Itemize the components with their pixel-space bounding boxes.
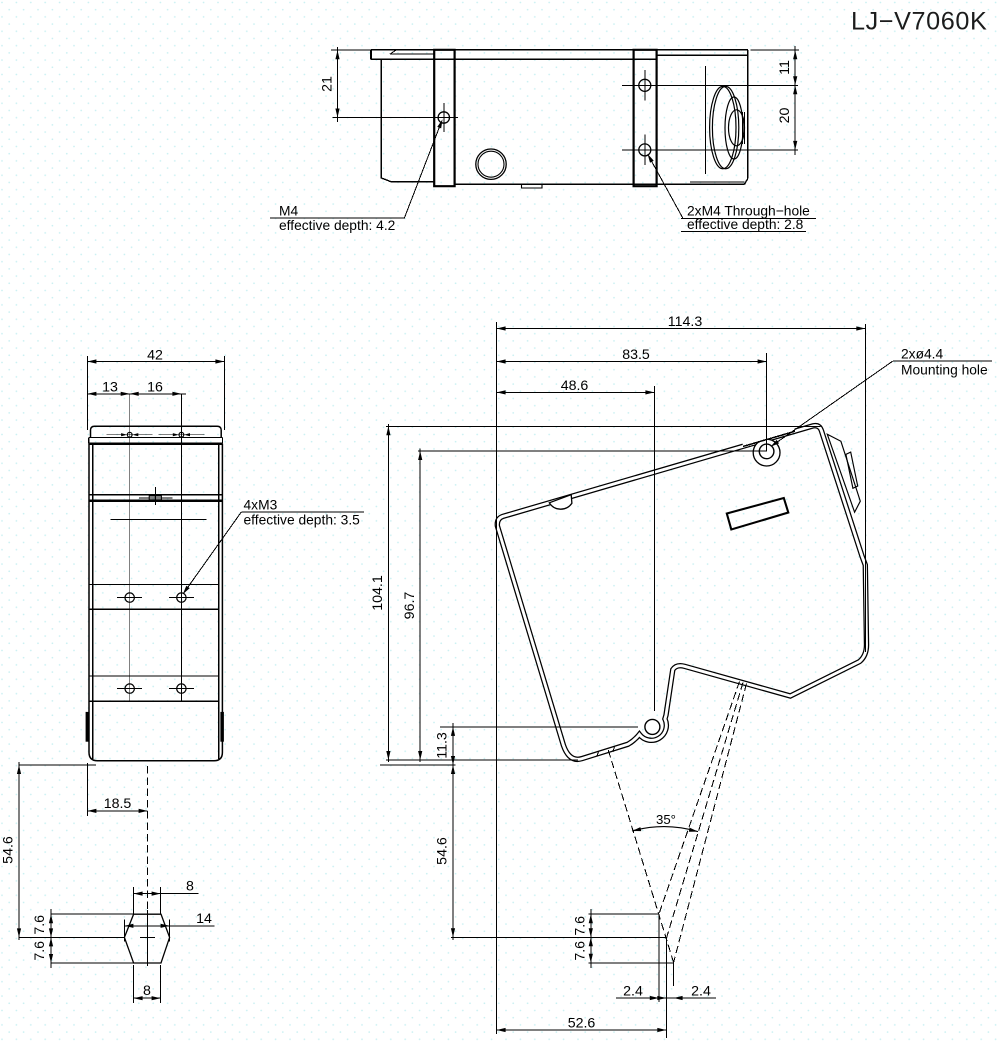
- svg-text:7.6: 7.6: [572, 916, 588, 936]
- svg-text:M4: M4: [279, 204, 298, 219]
- svg-text:effective depth: 3.5: effective depth: 3.5: [244, 513, 361, 528]
- svg-text:2xø4.4: 2xø4.4: [901, 346, 944, 361]
- svg-text:54.6: 54.6: [435, 837, 451, 865]
- svg-text:11: 11: [777, 60, 793, 75]
- svg-text:48.6: 48.6: [561, 378, 589, 394]
- svg-text:52.6: 52.6: [568, 1015, 596, 1031]
- svg-text:114.3: 114.3: [668, 314, 703, 330]
- svg-text:2.4: 2.4: [691, 983, 711, 999]
- svg-text:104.1: 104.1: [370, 575, 386, 611]
- svg-text:effective depth: 4.2: effective depth: 4.2: [279, 218, 395, 233]
- svg-text:8: 8: [186, 879, 194, 895]
- svg-text:11.3: 11.3: [435, 732, 451, 759]
- svg-text:2.4: 2.4: [623, 983, 643, 999]
- svg-text:20: 20: [777, 108, 793, 124]
- svg-text:13: 13: [102, 380, 118, 396]
- svg-text:7.6: 7.6: [32, 915, 48, 935]
- svg-text:8: 8: [143, 983, 151, 999]
- svg-text:Mounting hole: Mounting hole: [901, 363, 988, 378]
- svg-text:54.6: 54.6: [1, 836, 17, 864]
- svg-text:42: 42: [147, 348, 163, 364]
- svg-text:35°: 35°: [656, 812, 676, 827]
- svg-text:LJ−V7060K: LJ−V7060K: [851, 8, 987, 36]
- svg-text:14: 14: [196, 911, 212, 927]
- svg-text:4xM3: 4xM3: [244, 498, 278, 513]
- svg-text:7.6: 7.6: [572, 941, 588, 961]
- svg-text:7.6: 7.6: [32, 941, 48, 961]
- svg-text:21: 21: [320, 76, 336, 92]
- svg-text:effective depth: 2.8: effective depth: 2.8: [687, 217, 804, 232]
- svg-text:96.7: 96.7: [402, 592, 418, 620]
- svg-text:18.5: 18.5: [104, 796, 132, 812]
- svg-text:83.5: 83.5: [622, 347, 650, 363]
- svg-text:16: 16: [147, 380, 163, 396]
